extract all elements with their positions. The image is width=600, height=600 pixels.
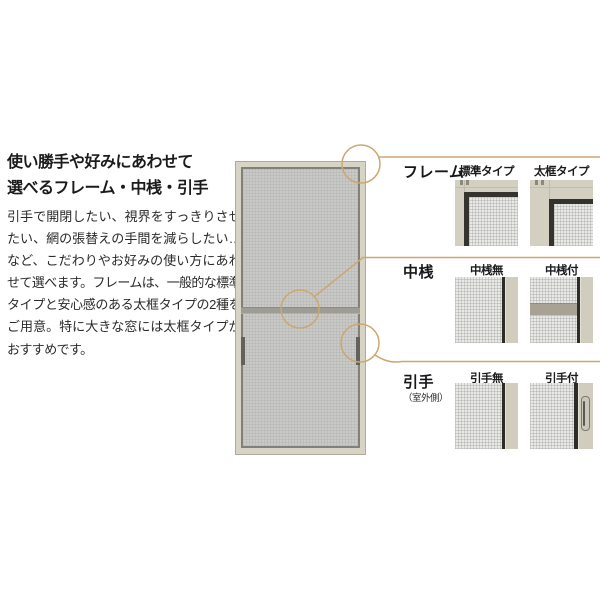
product-info-panel: 使い勝手や好みにあわせて 選べるフレーム・中桟・引手 引手で開閉したい、視界をす…: [0, 0, 600, 600]
option-label-no-midrail: 中桟無: [455, 262, 518, 278]
frame-notch: [535, 180, 538, 185]
frame-notch: [460, 180, 463, 185]
frame-beige-strip: [505, 277, 518, 343]
option-label-standard-type: 標準タイプ: [455, 163, 518, 179]
with-handle-image: [530, 383, 593, 449]
frame-seam: [549, 180, 550, 199]
callout-line-handle: [375, 355, 600, 362]
mesh-texture: [469, 197, 518, 246]
frame-notch: [466, 180, 469, 185]
frame-seam: [464, 180, 465, 192]
frame-seam: [530, 187, 593, 188]
frame-notch: [541, 180, 544, 185]
mesh-texture: [530, 383, 574, 449]
pull-handle: [581, 396, 590, 431]
frame-corner-border: [464, 192, 518, 246]
no-handle-image: [455, 383, 518, 449]
section-label-handle: 引手: [403, 371, 434, 392]
frame-beige-strip: [505, 383, 518, 449]
pull-handle-slot: [583, 401, 585, 426]
frame-corner-border: [549, 199, 593, 246]
section-sublabel-outdoor-side: （室外側）: [403, 390, 448, 404]
screen-door-illustration: [235, 161, 366, 455]
mesh-texture: [455, 277, 502, 343]
section-label-midrail: 中桟: [403, 261, 434, 282]
intro-heading: 使い勝手や好みにあわせて 選べるフレーム・中桟・引手: [7, 150, 247, 202]
corner-thick-frame-image: [530, 180, 593, 246]
door-handle-right: [356, 337, 360, 365]
midrail-bar: [530, 303, 577, 316]
with-midrail-image: [530, 277, 593, 343]
door-middle-rail: [241, 307, 360, 314]
option-label-thick-type: 太框タイプ: [530, 163, 593, 179]
corner-standard-frame-image: [455, 180, 518, 246]
option-label-with-midrail: 中桟付: [530, 262, 593, 278]
intro-body-text: 引手で開閉したい、視界をすっきりさせたい、網の張替えの手間を減らしたい…など、こ…: [7, 206, 241, 361]
mesh-texture: [554, 204, 593, 246]
frame-beige-strip: [580, 277, 593, 343]
no-midrail-image: [455, 277, 518, 343]
mesh-texture: [455, 383, 502, 449]
door-handle-left: [241, 337, 245, 365]
